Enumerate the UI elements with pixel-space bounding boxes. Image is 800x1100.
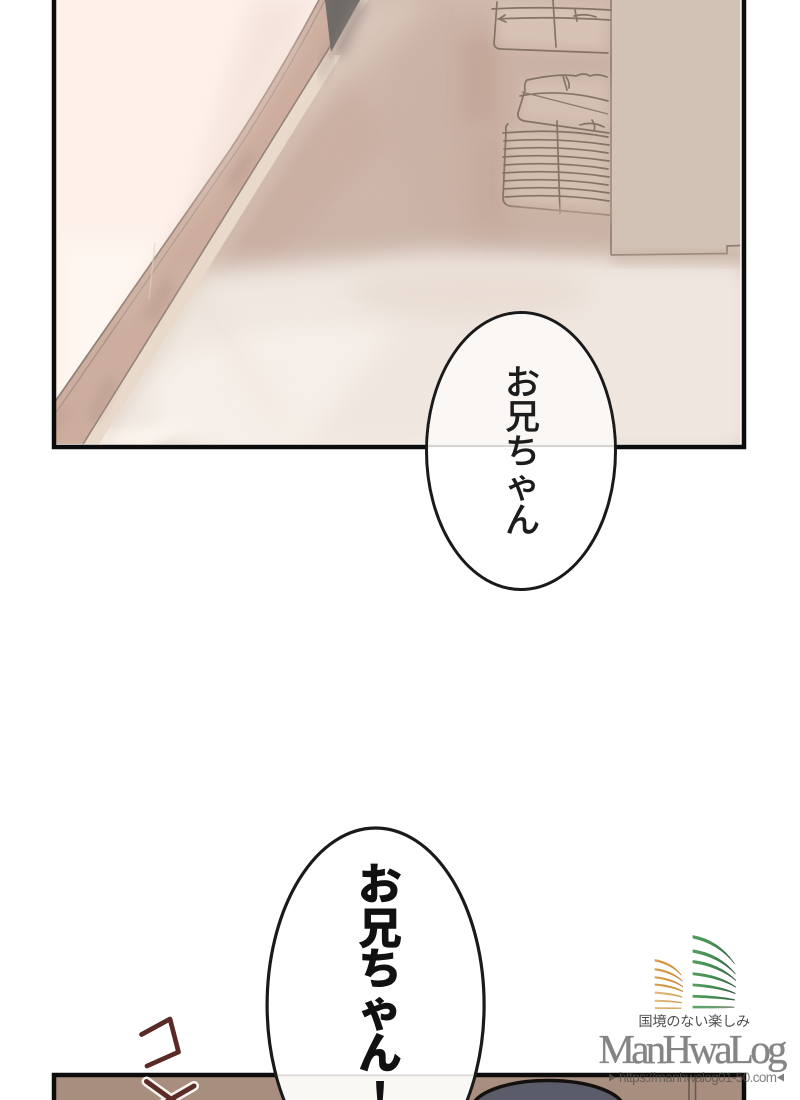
svg-text:ManHwaLog: ManHwaLog [599,1026,788,1072]
svg-text:https://manhwalog01-50.com: https://manhwalog01-50.com [619,1070,777,1085]
